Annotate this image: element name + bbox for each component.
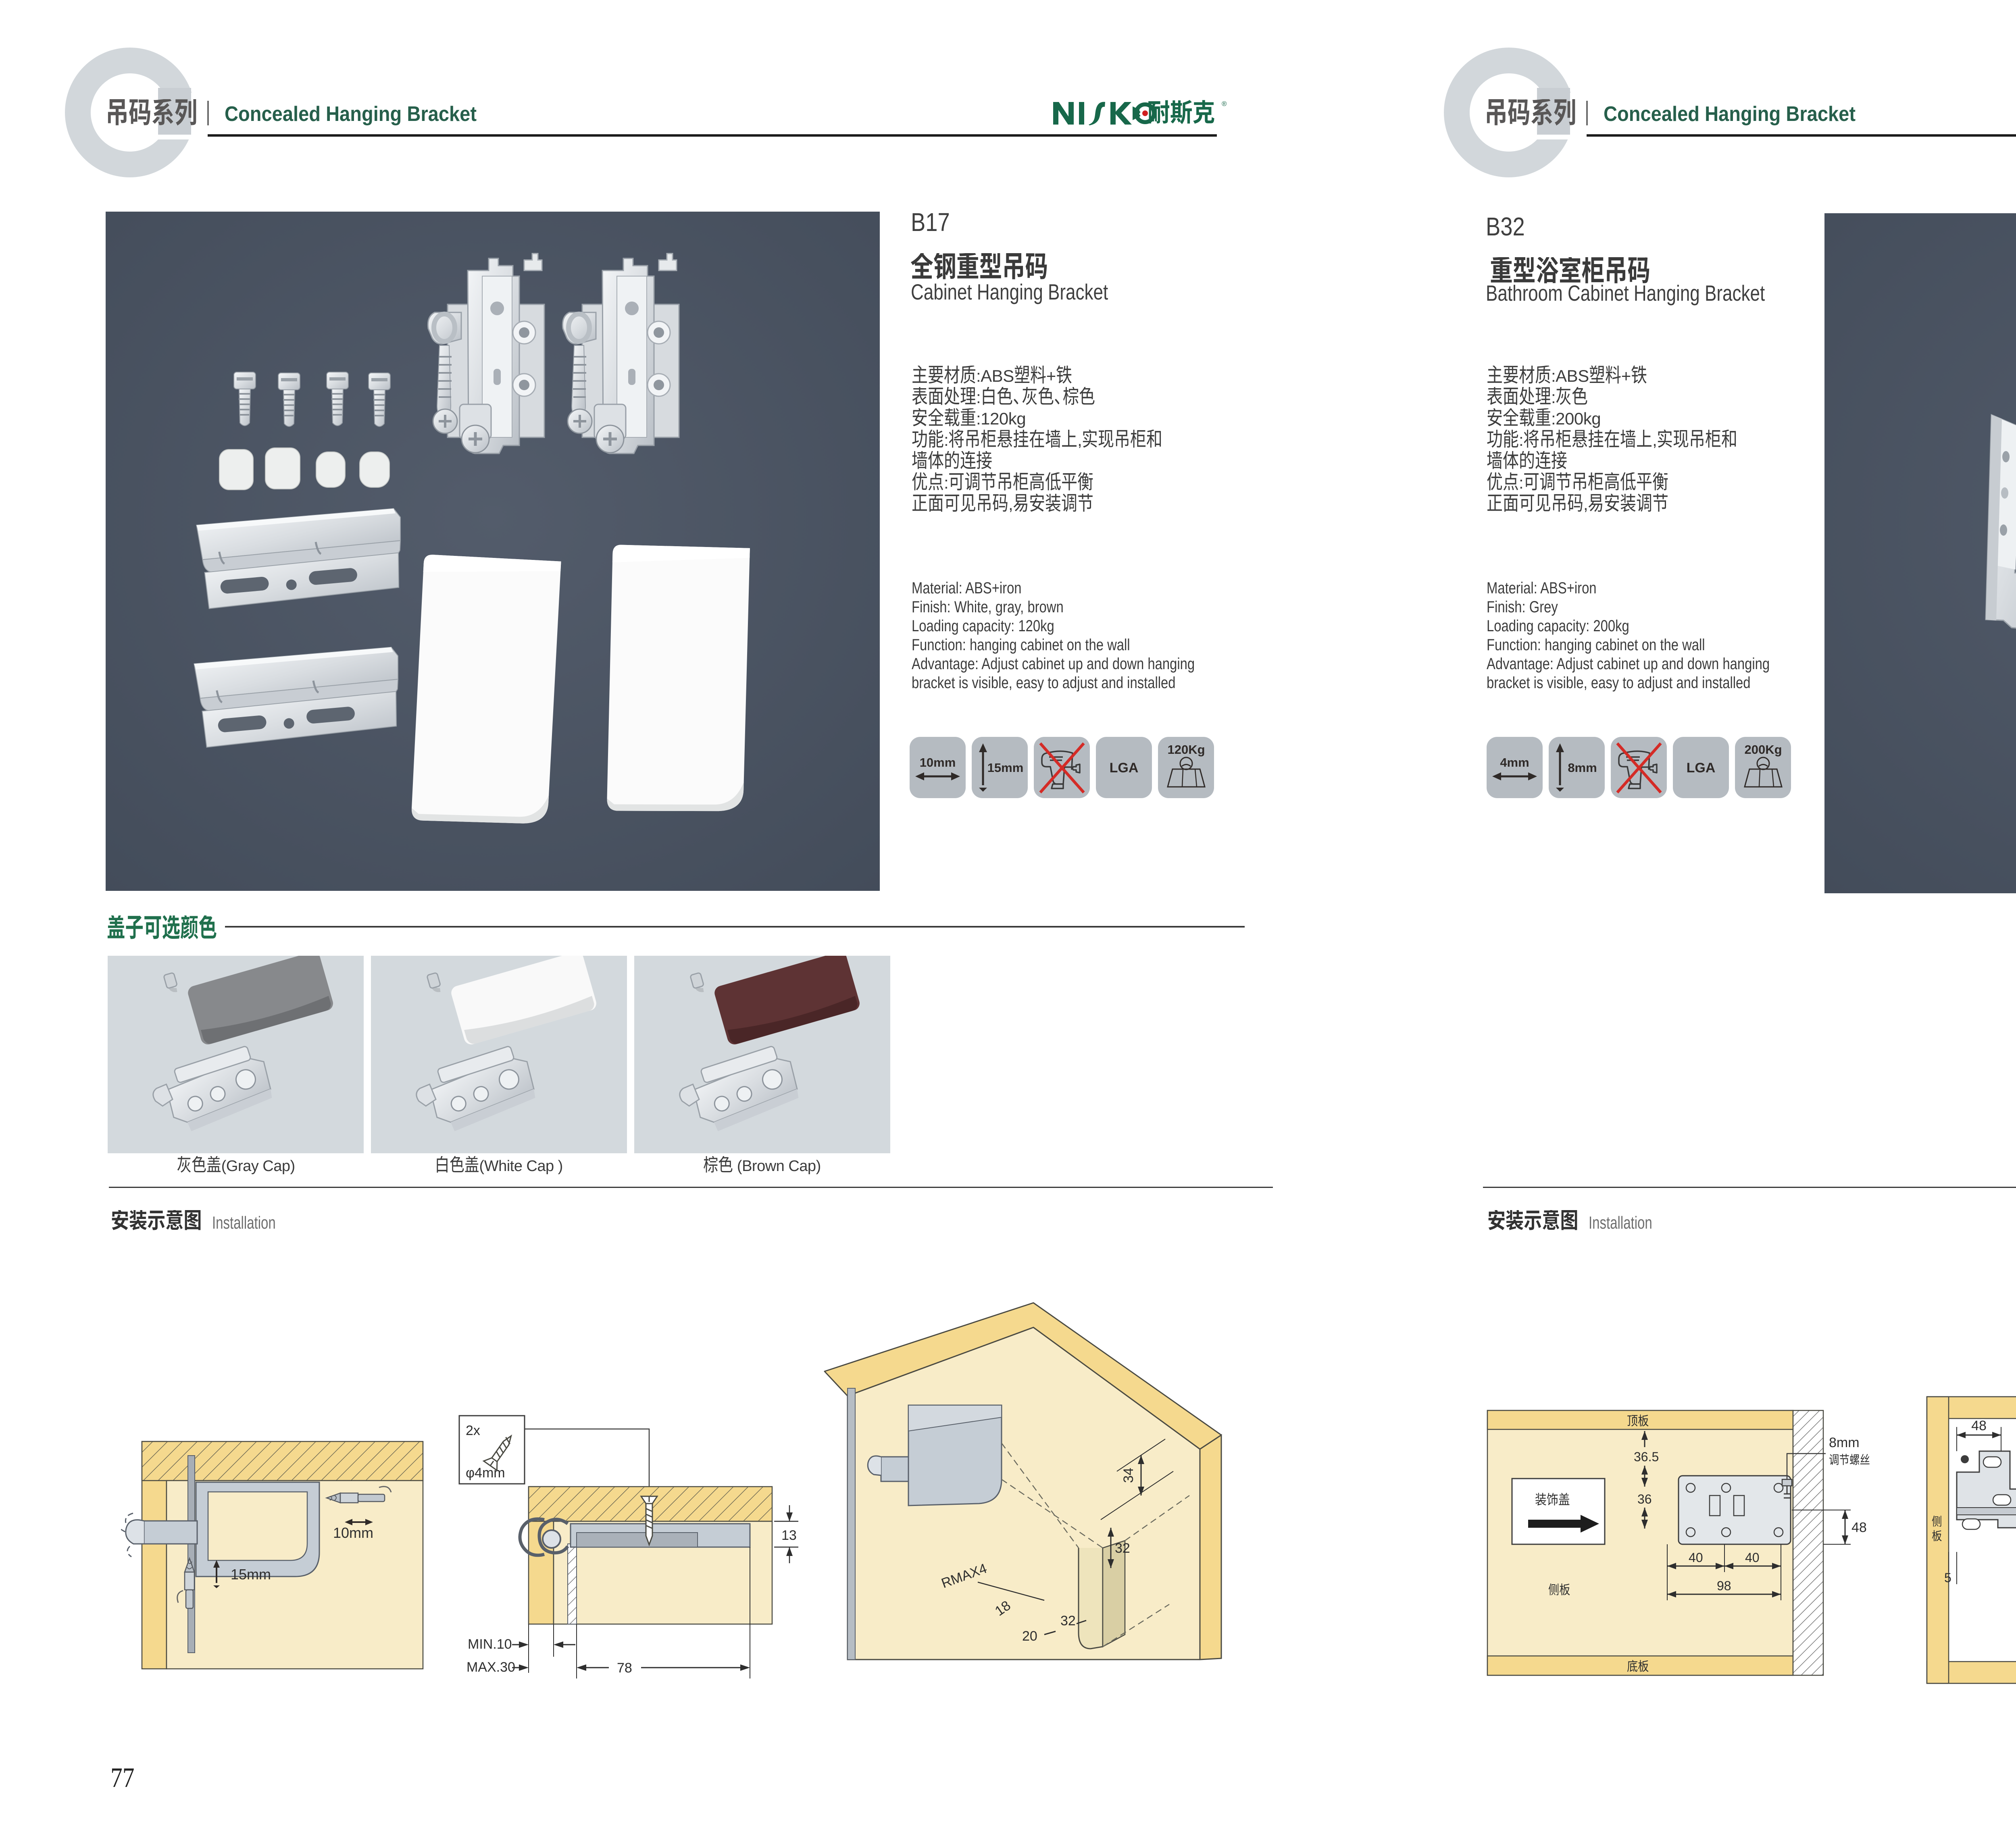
svg-text:5: 5 (1944, 1570, 1951, 1585)
svg-text:32: 32 (1060, 1613, 1076, 1629)
svg-text:LGA: LGA (1687, 760, 1716, 776)
svg-text:48: 48 (1971, 1418, 1987, 1433)
svg-text:®: ® (1222, 100, 1227, 108)
svg-text:13: 13 (781, 1528, 797, 1543)
svg-text:48: 48 (1851, 1520, 1867, 1535)
svg-text:8mm: 8mm (1829, 1435, 1860, 1450)
svg-text:34: 34 (1121, 1468, 1136, 1483)
svg-text:36.5: 36.5 (1634, 1450, 1659, 1464)
svg-text:10mm: 10mm (333, 1525, 373, 1541)
svg-text:32: 32 (1115, 1541, 1130, 1556)
svg-text:20: 20 (1022, 1629, 1037, 1644)
svg-text:40: 40 (1689, 1550, 1703, 1565)
svg-text:LGA: LGA (1110, 760, 1139, 776)
svg-text:10mm: 10mm (920, 755, 956, 770)
svg-text:15mm: 15mm (231, 1566, 271, 1583)
svg-text:MAX.30: MAX.30 (467, 1660, 515, 1675)
svg-text:φ4mm: φ4mm (466, 1465, 505, 1481)
svg-text:40: 40 (1745, 1550, 1760, 1565)
svg-text:8mm: 8mm (1568, 761, 1597, 775)
svg-text:78: 78 (617, 1660, 632, 1676)
svg-text:MIN.10: MIN.10 (468, 1637, 512, 1652)
svg-text:4mm: 4mm (1500, 755, 1529, 770)
svg-text:15mm: 15mm (987, 761, 1024, 775)
svg-text:200Kg: 200Kg (1744, 743, 1782, 757)
svg-text:36: 36 (1637, 1492, 1652, 1506)
svg-text:98: 98 (1717, 1579, 1731, 1593)
svg-text:2x: 2x (466, 1423, 480, 1438)
svg-text:120Kg: 120Kg (1167, 743, 1205, 757)
